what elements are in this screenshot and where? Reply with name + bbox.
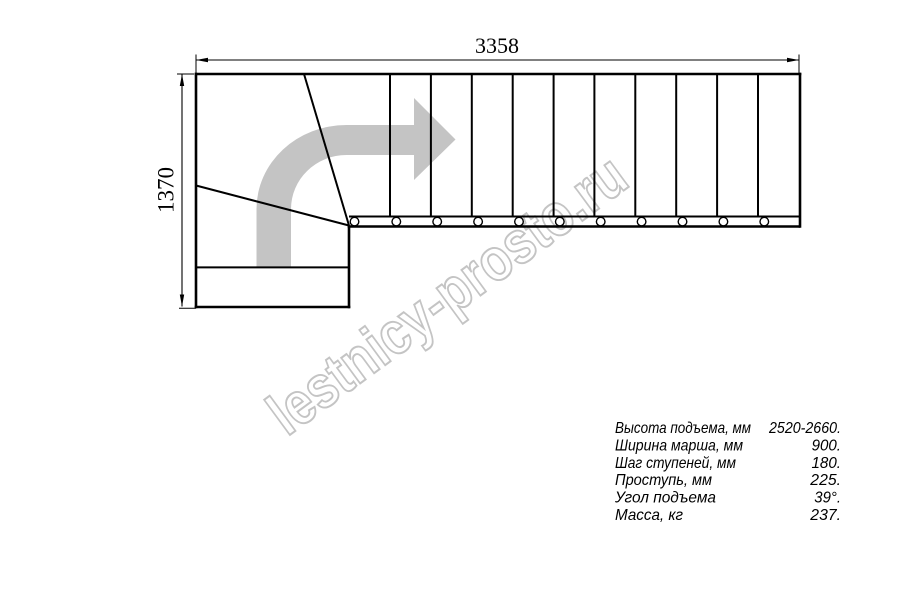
svg-text:Масса, кг: Масса, кг (615, 507, 683, 524)
svg-text:2520-2660.: 2520-2660. (768, 420, 841, 437)
svg-text:39°.: 39°. (814, 490, 841, 507)
svg-text:180.: 180. (812, 455, 842, 472)
svg-text:900.: 900. (812, 437, 841, 454)
svg-text:3358: 3358 (475, 33, 519, 58)
svg-text:1370: 1370 (154, 167, 179, 213)
svg-text:237.: 237. (809, 507, 841, 524)
svg-text:Высота подъема, мм: Высота подъема, мм (615, 420, 751, 437)
svg-text:225.: 225. (809, 472, 841, 489)
svg-text:Шаг ступеней, мм: Шаг ступеней, мм (615, 455, 736, 472)
svg-text:Проступь, мм: Проступь, мм (615, 472, 712, 489)
svg-text:Угол подъема: Угол подъема (614, 490, 716, 507)
svg-text:Ширина марша, мм: Ширина марша, мм (615, 437, 743, 454)
